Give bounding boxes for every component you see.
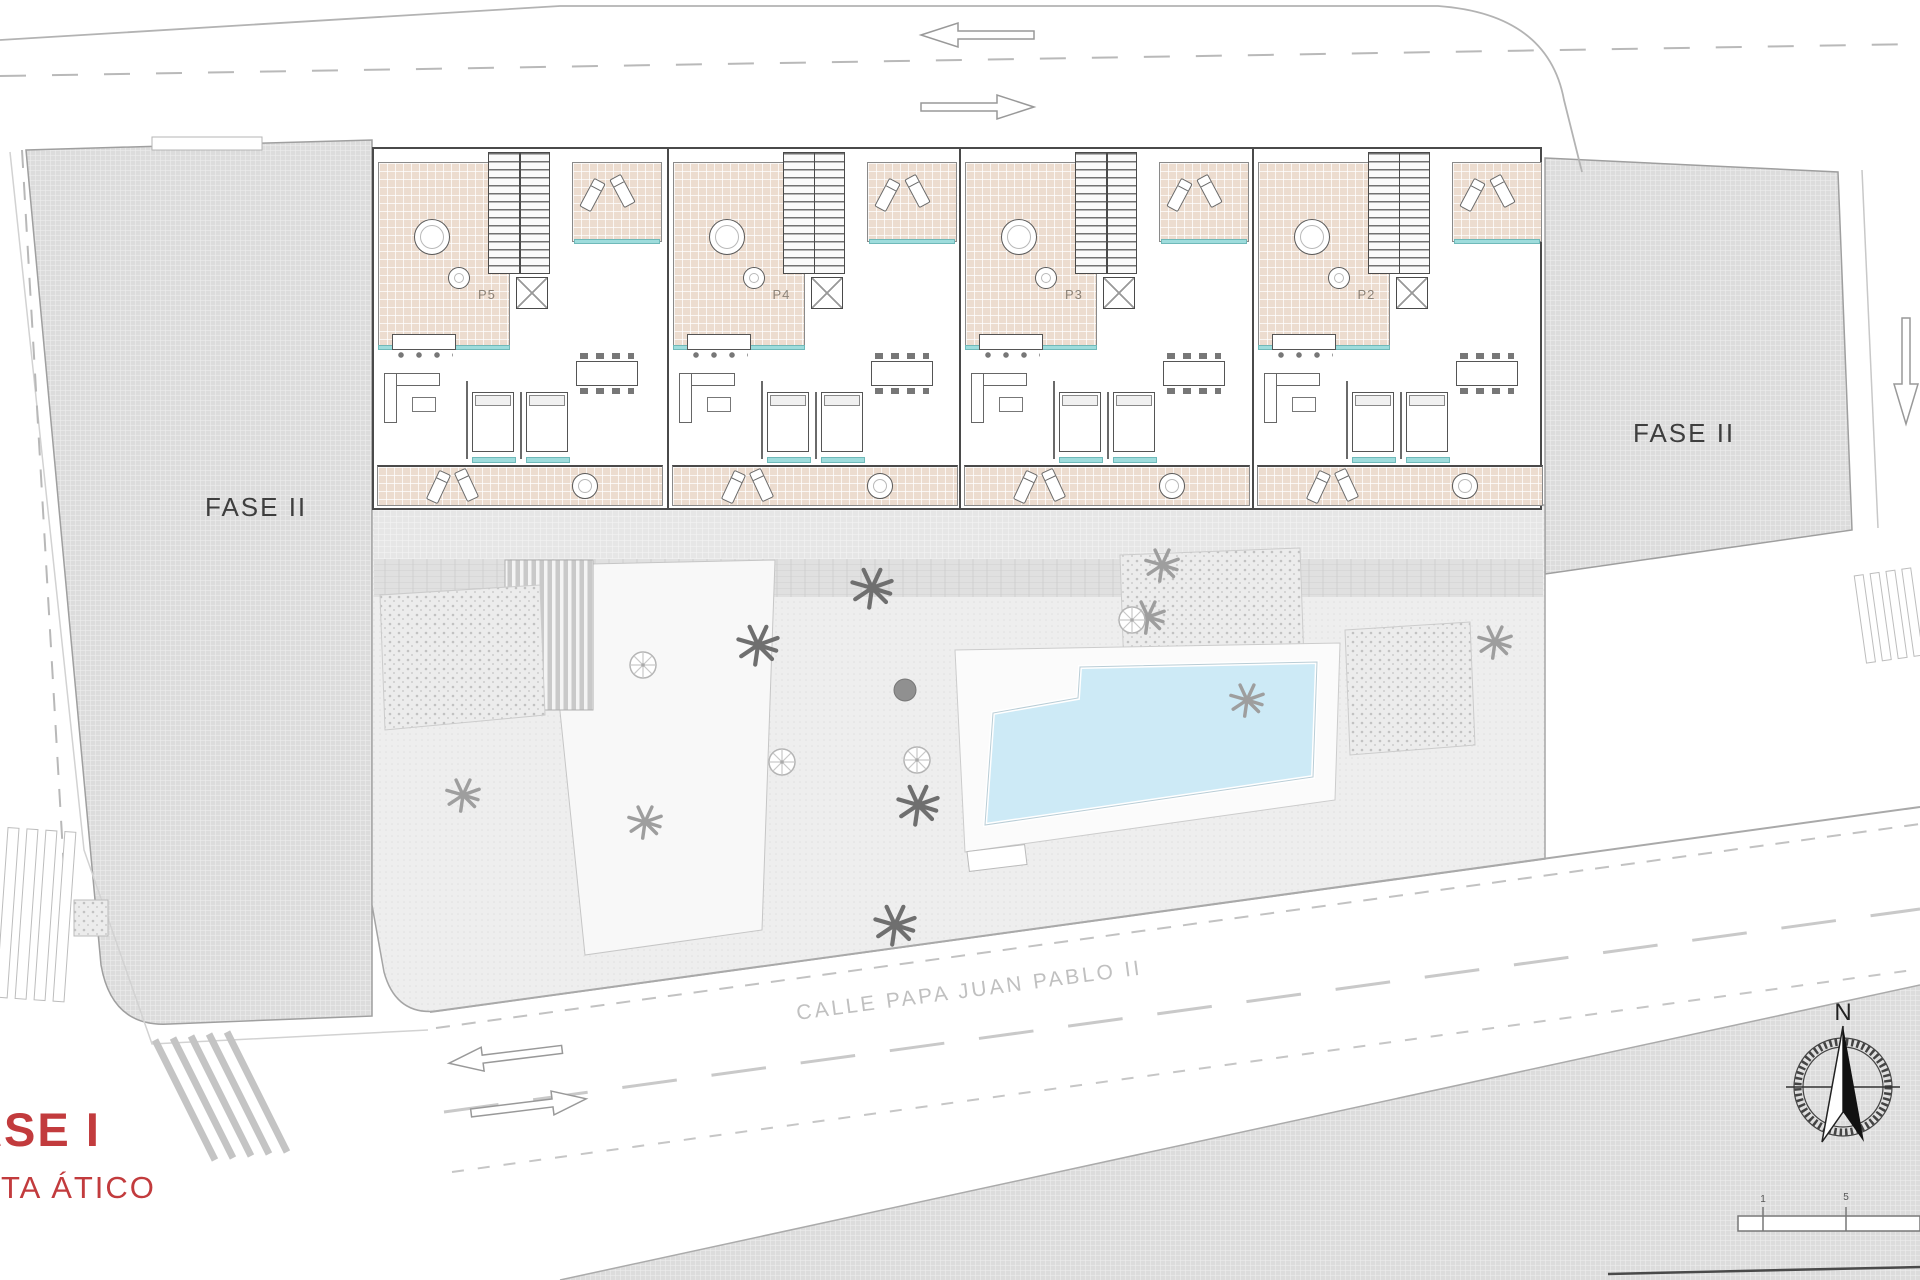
terrace-table — [414, 219, 450, 255]
compass-north-label: N — [1834, 999, 1851, 1026]
terrace-rear — [964, 465, 1250, 506]
bed — [1113, 392, 1155, 452]
terrace-rear — [672, 465, 958, 506]
interior-wall — [1400, 392, 1402, 459]
stair-core — [1075, 152, 1137, 274]
garden-shrub — [894, 679, 916, 701]
coffee-table — [707, 397, 731, 412]
window-sill — [1161, 239, 1247, 244]
interior-wall — [520, 392, 522, 459]
sofa — [679, 373, 692, 423]
sofa — [1264, 373, 1277, 423]
scale-tick-2: 5 — [1843, 1192, 1849, 1203]
phase2-label-right: FASE II — [1633, 418, 1735, 449]
window-sill — [821, 457, 865, 463]
window-sill — [1454, 239, 1540, 244]
kitchen-island — [392, 334, 456, 350]
coffee-table — [999, 397, 1023, 412]
interior-wall — [761, 381, 763, 459]
pergola-band — [374, 507, 1543, 559]
traffic-arrow-right-icon — [921, 95, 1034, 119]
bed — [472, 392, 514, 452]
bed — [1352, 392, 1394, 452]
floor-title: PLANTA ÁTICO — [0, 1170, 156, 1206]
bed — [526, 392, 568, 452]
apartment-module: P3 — [959, 149, 1252, 508]
unit-label: P4 — [773, 287, 791, 302]
interior-wall — [466, 381, 468, 459]
apartment-module: P5 — [374, 149, 667, 508]
stair-core — [1368, 152, 1430, 274]
dining-table — [1456, 361, 1518, 386]
road-centerline-top — [0, 44, 1920, 76]
sofa — [384, 373, 397, 423]
window-sill — [1113, 457, 1157, 463]
bed — [1059, 392, 1101, 452]
window-sill — [1352, 457, 1396, 463]
right-street-markings — [1854, 318, 1920, 663]
terrace-table — [1159, 473, 1185, 499]
breakfast-table — [1328, 267, 1350, 289]
street-arrow-left-icon — [447, 1037, 563, 1075]
unit-label: P2 — [1358, 287, 1376, 302]
interior-wall — [1346, 381, 1348, 459]
unit-label: P3 — [1065, 287, 1083, 302]
terrace-table — [1001, 219, 1037, 255]
terrace-rear — [1257, 465, 1543, 506]
planting-bed-pool — [1345, 622, 1475, 755]
sofa — [971, 373, 984, 423]
apartment-module: P2 — [1252, 149, 1545, 508]
interior-wall — [1107, 392, 1109, 459]
dining-table — [1163, 361, 1225, 386]
window-sill — [767, 457, 811, 463]
kitchen-island — [1272, 334, 1336, 350]
coffee-table — [1292, 397, 1316, 412]
elevator-shaft — [811, 277, 843, 309]
breakfast-table — [743, 267, 765, 289]
site-plan-canvas: N 1 5 P5 — [0, 0, 1920, 1280]
dining-table — [871, 361, 933, 386]
bed — [1406, 392, 1448, 452]
stair-core — [783, 152, 845, 274]
building-fase1: P5 P4 — [372, 147, 1542, 510]
window-sill — [526, 457, 570, 463]
apartment-module: P4 — [667, 149, 960, 508]
left-phase2-block — [10, 137, 428, 1044]
elevator-shaft — [1396, 277, 1428, 309]
interior-wall — [1053, 381, 1055, 459]
sidewalk-edge-right — [1862, 170, 1878, 528]
window-sill — [472, 457, 516, 463]
kitchen-island — [687, 334, 751, 350]
garden-courtyard — [372, 461, 1545, 1012]
breakfast-table — [448, 267, 470, 289]
interior-wall — [815, 392, 817, 459]
breakfast-table — [1035, 267, 1057, 289]
street-traffic-arrows — [447, 1035, 587, 1127]
right-phase2-block — [1545, 158, 1878, 574]
terrace-table — [1452, 473, 1478, 499]
block-notch — [152, 137, 262, 150]
phase1-title: FASE I — [0, 1102, 101, 1157]
terrace-rear — [377, 465, 663, 506]
terrace-table — [572, 473, 598, 499]
planting-bed-left — [380, 585, 545, 730]
window-sill — [1406, 457, 1450, 463]
diagonal-stripes-left — [155, 1032, 287, 1160]
down-arrow-icon — [1894, 318, 1918, 424]
phase2-label-left: FASE II — [205, 492, 307, 523]
crosswalk-right — [1854, 568, 1920, 663]
elevator-shaft — [1103, 277, 1135, 309]
bottom-sidewalk-area — [560, 985, 1920, 1280]
utility-pad — [74, 900, 108, 936]
terrace-table — [867, 473, 893, 499]
stair-core — [488, 152, 550, 274]
terrace-table — [1294, 219, 1330, 255]
window-sill — [574, 239, 660, 244]
window-sill — [1059, 457, 1103, 463]
bed — [767, 392, 809, 452]
elevator-shaft — [516, 277, 548, 309]
crosswalk-left — [0, 828, 76, 1002]
coffee-table — [412, 397, 436, 412]
bed — [821, 392, 863, 452]
traffic-arrow-left-icon — [921, 23, 1034, 47]
scale-tick-1: 1 — [1760, 1194, 1766, 1205]
terrace-table — [709, 219, 745, 255]
window-sill — [869, 239, 955, 244]
unit-label: P5 — [478, 287, 496, 302]
kitchen-island — [979, 334, 1043, 350]
dining-table — [576, 361, 638, 386]
